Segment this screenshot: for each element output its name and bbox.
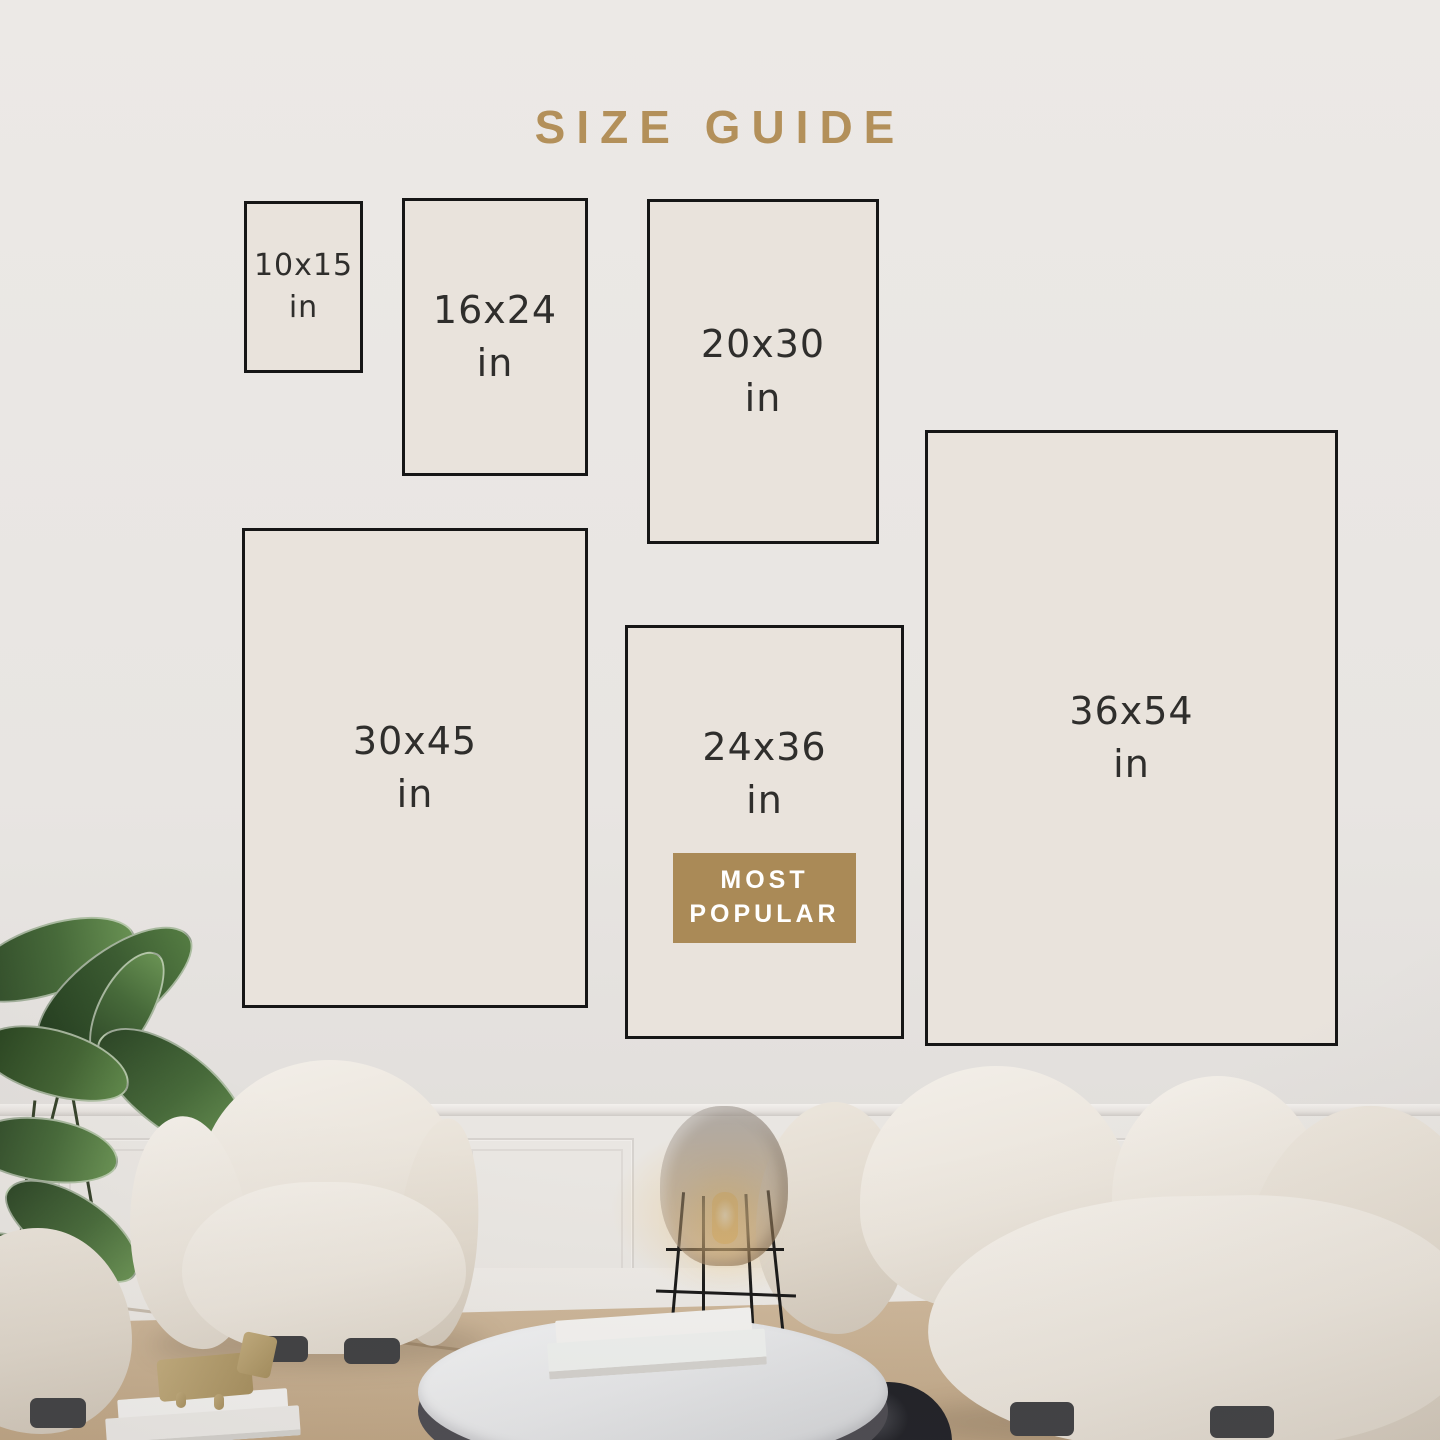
size-box-10x15: 10x15 in [244,201,363,373]
unit-label: in [745,372,782,425]
unit-label: in [397,768,434,821]
size-label: 16x24 [433,284,557,337]
wood-dog-sculpture-leg [176,1392,186,1408]
unit-label: in [1113,738,1150,791]
unit-label: in [477,337,514,390]
size-box-30x45: 30x45 in [242,528,588,1008]
sofa-leg [1210,1406,1274,1438]
wood-dog-sculpture-leg [214,1394,224,1410]
most-popular-badge: MOST POPULAR [673,853,855,943]
size-label: 36x54 [1069,685,1193,738]
size-label: 30x45 [353,715,477,768]
lamp-glass-shade [660,1106,788,1266]
armchair-seat [182,1182,466,1354]
size-box-36x54: 36x54 in [925,430,1338,1046]
size-label: 10x15 [254,245,353,287]
badge-line-2: POPULAR [689,898,839,932]
size-box-24x36: 24x36 in MOST POPULAR [625,625,904,1039]
size-box-16x24: 16x24 in [402,198,588,476]
unit-label: in [746,774,783,827]
armchair-leg [344,1338,400,1364]
sofa-leg [1010,1402,1074,1436]
size-label: 24x36 [702,721,826,774]
badge-line-1: MOST [689,864,839,898]
size-box-20x30: 20x30 in [647,199,879,544]
unit-label: in [289,287,318,329]
size-label: 20x30 [701,318,825,371]
pouf-leg [30,1398,86,1428]
size-guide-title: SIZE GUIDE [0,100,1440,154]
size-guide-image: SIZE GUIDE 10x15 in 16x24 in 20x30 in 30… [0,0,1440,1440]
